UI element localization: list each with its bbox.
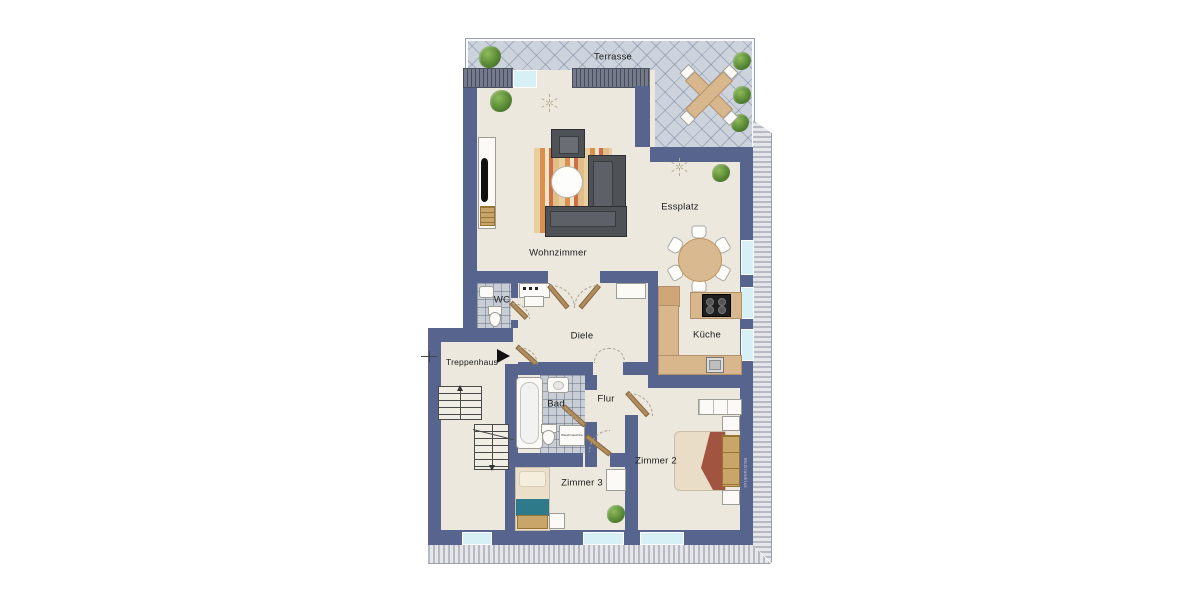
watermark-text: McGrundriss <box>743 458 748 488</box>
window <box>583 532 624 545</box>
roof-overhang-bottom <box>428 545 771 564</box>
room-label-bad: Bad <box>547 399 565 410</box>
wall-segment <box>650 147 753 162</box>
wall-segment <box>463 70 477 328</box>
wardrobe <box>698 399 742 415</box>
kitchen-counter <box>658 355 742 375</box>
wc-sink <box>479 286 494 298</box>
sideboard <box>524 296 544 307</box>
window <box>462 532 492 545</box>
window <box>741 287 754 319</box>
floorplan: Waschmaschine Terrasse Wohnzimmer Esspla… <box>0 0 1200 600</box>
washing-machine: Waschmaschine <box>559 425 585 446</box>
wall-segment <box>635 86 650 147</box>
wall-segment <box>600 271 648 283</box>
dimension-tick <box>429 351 430 362</box>
wall-segment <box>585 375 597 390</box>
wall-segment <box>623 362 650 375</box>
wall-segment <box>572 68 650 88</box>
room-label-wohnzimmer: Wohnzimmer <box>529 248 587 259</box>
nightstand <box>722 416 740 431</box>
dresser <box>606 469 626 491</box>
kitchen-counter <box>658 305 679 357</box>
room-label-kueche: Küche <box>693 330 721 341</box>
room-label-diele: Diele <box>571 331 594 342</box>
window <box>640 532 684 545</box>
washing-machine-label: Waschmaschine <box>561 434 583 438</box>
wall-segment <box>463 271 548 283</box>
stairs-upper-flight <box>438 386 482 420</box>
wall-segment <box>511 320 518 328</box>
wall-segment <box>428 332 441 545</box>
wall-segment <box>648 373 753 388</box>
headboard <box>722 435 740 487</box>
nightstand <box>549 513 565 529</box>
wall-segment <box>625 415 638 530</box>
window <box>741 240 754 275</box>
stairs-lower-flight <box>474 424 509 470</box>
armchair <box>551 129 585 158</box>
single-bed <box>515 467 550 531</box>
nightstand <box>722 490 740 505</box>
room-label-terrasse: Terrasse <box>594 52 632 63</box>
sofa <box>545 206 627 237</box>
blanket <box>516 499 549 516</box>
wall-segment <box>610 453 625 467</box>
footboard <box>517 515 548 529</box>
terrace-door-window <box>513 70 537 88</box>
tv-icon <box>481 158 488 202</box>
room-label-wc: WC <box>494 295 510 306</box>
bath-sink <box>547 377 569 393</box>
bathtub <box>516 377 543 449</box>
roof-overhang-right <box>753 120 772 563</box>
stove-icon <box>702 294 731 317</box>
kitchen-sink-icon <box>706 357 724 373</box>
wall-segment <box>511 283 518 298</box>
wall-segment <box>505 453 583 467</box>
wall-segment <box>463 68 513 88</box>
terrace-table <box>680 66 736 122</box>
coffee-table <box>551 166 583 198</box>
stereo-cabinet <box>480 206 495 226</box>
ceiling-light-icon <box>540 94 558 112</box>
dining-set <box>678 238 720 280</box>
entrance-arrow-icon <box>497 349 510 363</box>
room-label-essplatz: Essplatz <box>661 202 699 213</box>
cabinet <box>616 283 646 299</box>
kitchen-counter <box>658 286 680 307</box>
ceiling-light-icon <box>670 158 688 176</box>
wall-segment <box>428 328 513 342</box>
double-bed <box>674 431 726 491</box>
window <box>741 329 754 361</box>
room-label-zimmer2: Zimmer 2 <box>635 456 677 467</box>
dining-table <box>678 238 722 282</box>
room-label-treppenhaus: Treppenhaus <box>446 357 498 367</box>
room-label-zimmer3: Zimmer 3 <box>561 478 603 489</box>
room-label-flur: Flur <box>597 394 614 405</box>
